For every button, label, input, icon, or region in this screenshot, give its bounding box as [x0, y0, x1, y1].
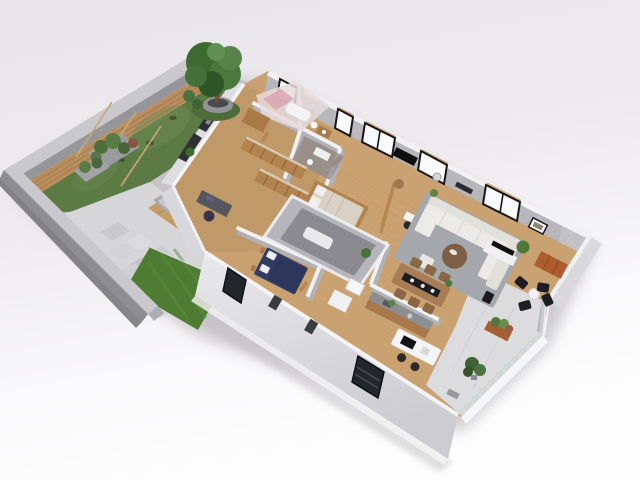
plant — [517, 241, 530, 254]
plant — [361, 248, 371, 258]
floor-plan-render — [0, 0, 640, 480]
plant — [430, 189, 438, 197]
render-canvas — [0, 0, 640, 480]
toilet — [307, 159, 313, 165]
round-side-table — [394, 179, 404, 189]
counter-plant — [389, 300, 396, 307]
toilet — [311, 122, 318, 129]
round-decor-table — [433, 173, 441, 181]
office-plant — [186, 148, 195, 157]
